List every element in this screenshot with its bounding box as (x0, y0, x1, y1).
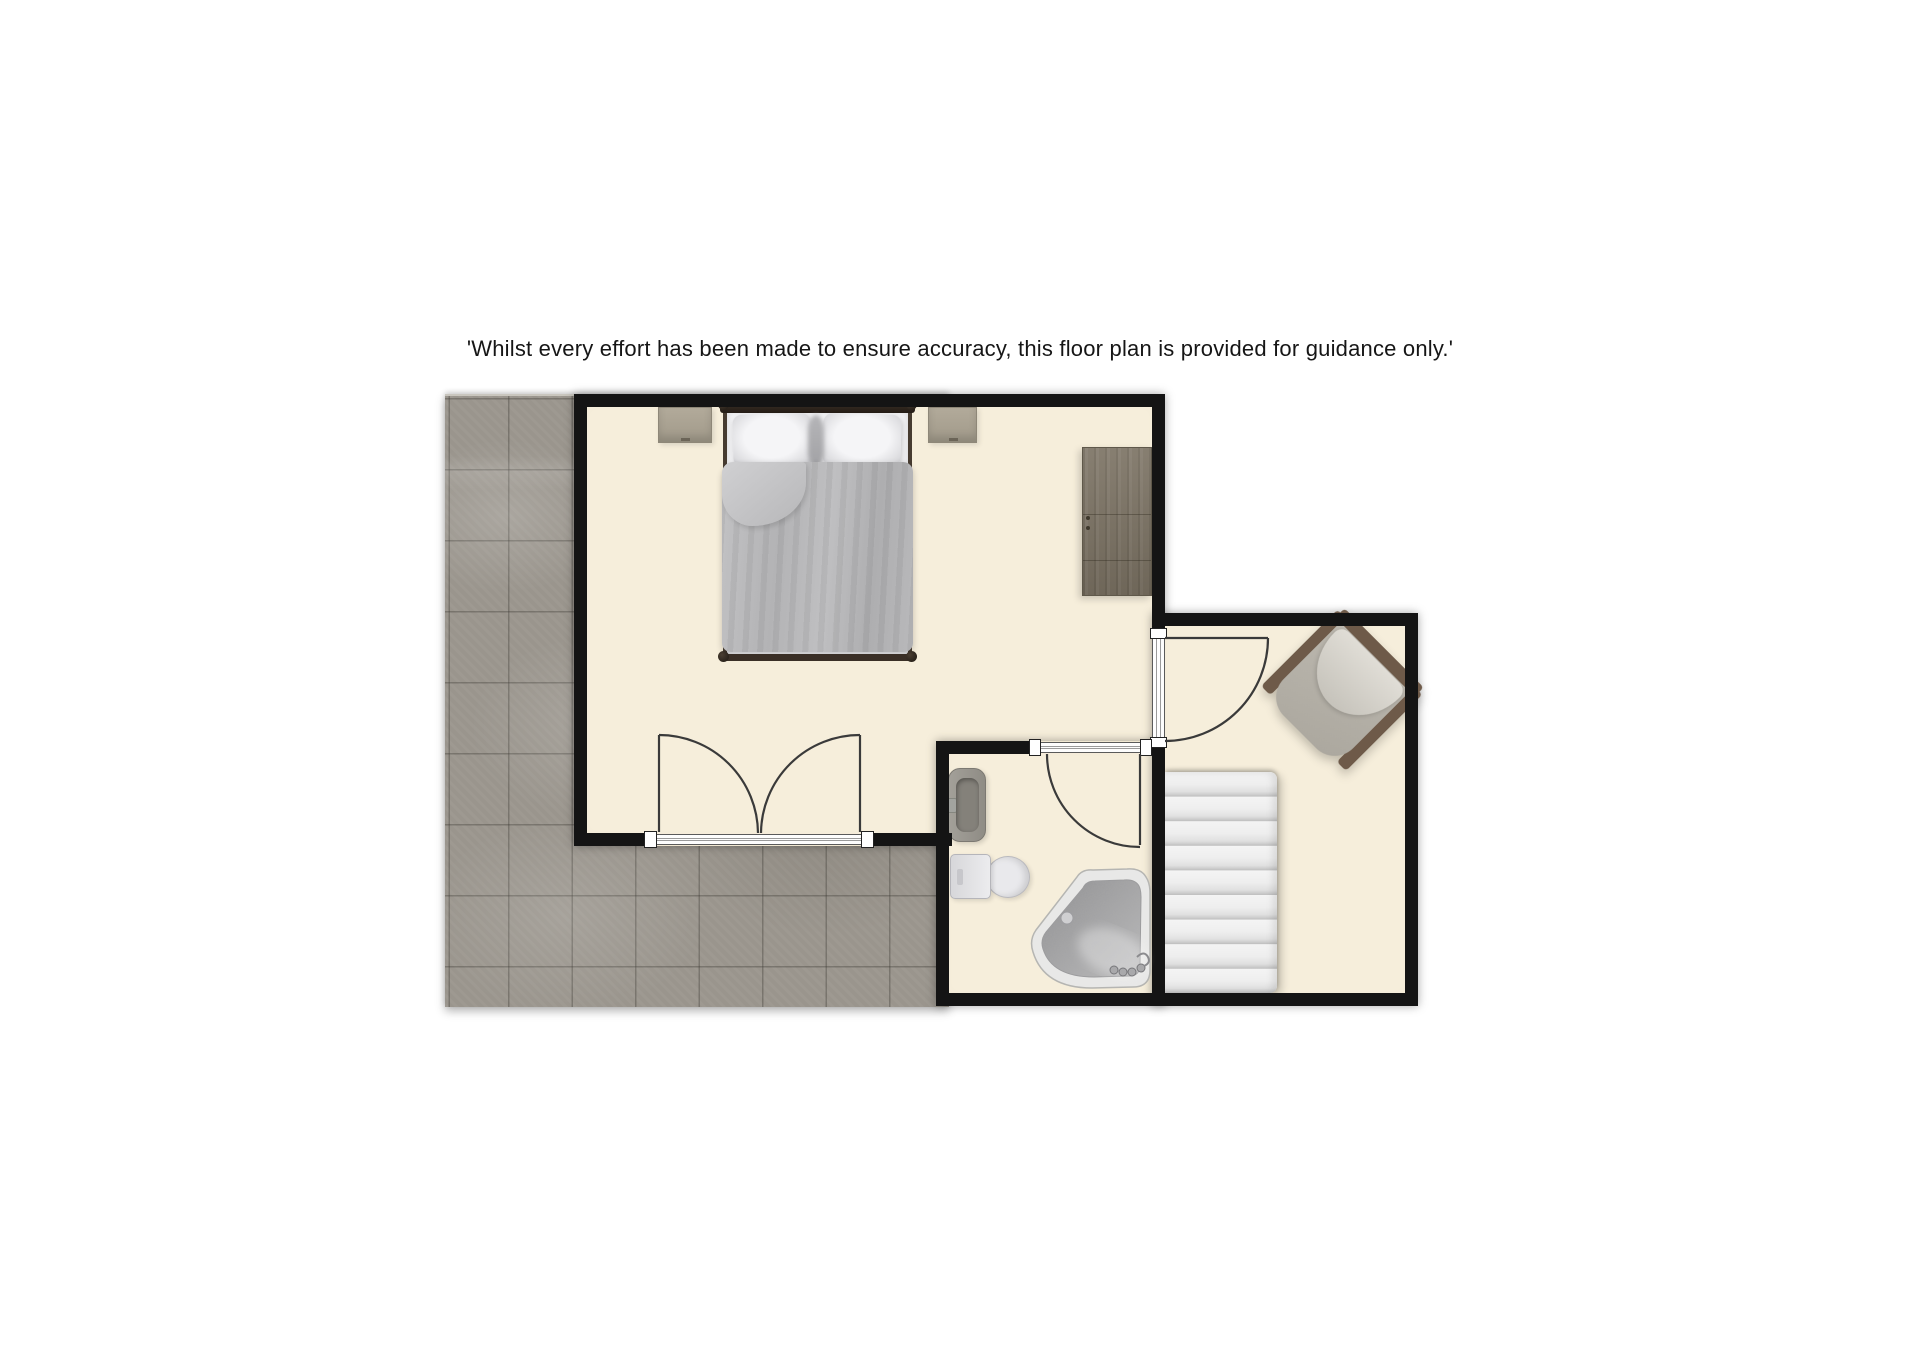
bathroom-wall-top-left (936, 741, 1035, 754)
bed-post-knob (906, 651, 917, 662)
door-frame-cap (644, 831, 657, 848)
wardrobe-seam (1083, 514, 1151, 515)
door-frame-cap (1150, 737, 1167, 748)
bathroom-sink (948, 768, 986, 842)
pillow-gap-shading (808, 415, 824, 467)
pillow-right (822, 413, 901, 467)
nightstand-right (928, 407, 977, 443)
bedroom-wall-bottom-left (574, 833, 648, 846)
disclaimer-text: 'Whilst every effort has been made to en… (0, 336, 1920, 362)
nightstand-handle (949, 438, 958, 441)
double-bed (720, 400, 915, 665)
bed-foot-rail (722, 654, 913, 661)
double-door-frame (648, 834, 872, 845)
ensuite-door-frame (1035, 742, 1147, 753)
pillow-left (732, 413, 811, 467)
staircase (1165, 772, 1277, 993)
wardrobe-handle (1086, 526, 1090, 530)
nightstand-left (658, 407, 712, 443)
door-frame-cap (861, 831, 874, 848)
bottom-wall (936, 993, 1418, 1006)
toilet-cistern (950, 854, 991, 899)
floorplan-page: 'Whilst every effort has been made to en… (0, 0, 1920, 1358)
wardrobe-handle (1086, 516, 1090, 520)
wardrobe (1082, 447, 1152, 596)
nightstand-handle (681, 438, 690, 441)
bedroom-landing-door-frame (1152, 632, 1165, 745)
bedroom-wall-right (1152, 394, 1165, 632)
landing-wall-right (1405, 613, 1418, 1006)
toilet-flush-button (957, 869, 963, 885)
bathroom-landing-divider-wall (1152, 745, 1165, 993)
door-frame-cap (1140, 739, 1152, 756)
bathroom-wall-left (936, 741, 949, 1006)
duvet-fold (722, 462, 806, 526)
bed-post-knob (718, 651, 729, 662)
toilet-bowl (986, 856, 1030, 898)
door-frame-cap (1150, 628, 1167, 639)
door-frame-cap (1029, 739, 1041, 756)
bed-duvet (722, 462, 913, 652)
bedroom-wall-top (574, 394, 1165, 407)
bedroom-wall-left (574, 394, 587, 846)
landing-wall-top (1152, 613, 1418, 626)
wardrobe-seam (1083, 560, 1151, 561)
sink-bowl (956, 778, 979, 832)
